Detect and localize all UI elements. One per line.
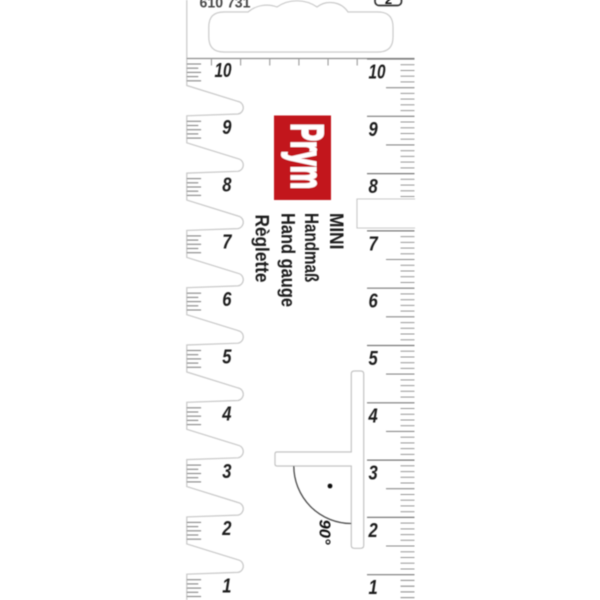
svg-text:8: 8 (222, 174, 232, 196)
svg-text:1: 1 (222, 576, 231, 598)
svg-text:7: 7 (222, 232, 232, 254)
svg-text:90°: 90° (316, 520, 333, 546)
svg-text:Règlette: Règlette (251, 215, 273, 283)
svg-text:7: 7 (369, 233, 379, 255)
svg-text:2: 2 (221, 518, 231, 540)
svg-text:9: 9 (222, 117, 232, 139)
svg-text:MINI: MINI (325, 213, 347, 249)
svg-text:4: 4 (221, 404, 231, 426)
svg-text:5: 5 (222, 346, 232, 368)
svg-text:8: 8 (369, 176, 379, 198)
svg-text:3: 3 (369, 463, 378, 485)
svg-text:Hand gauge: Hand gauge (277, 213, 299, 307)
svg-text:610 731: 610 731 (200, 0, 251, 12)
svg-text:6: 6 (222, 289, 232, 311)
svg-text:Prym: Prym (282, 124, 333, 190)
svg-text:2: 2 (368, 520, 378, 542)
svg-text:3: 3 (222, 461, 231, 483)
svg-text:9: 9 (369, 119, 379, 141)
svg-text:5: 5 (369, 348, 379, 370)
svg-text:10: 10 (369, 62, 386, 84)
svg-text:2: 2 (385, 0, 392, 7)
svg-text:6: 6 (369, 291, 379, 313)
svg-text:10: 10 (215, 60, 232, 82)
svg-text:Handmaß: Handmaß (300, 213, 322, 282)
svg-text:4: 4 (368, 405, 378, 427)
svg-text:1: 1 (369, 577, 378, 599)
